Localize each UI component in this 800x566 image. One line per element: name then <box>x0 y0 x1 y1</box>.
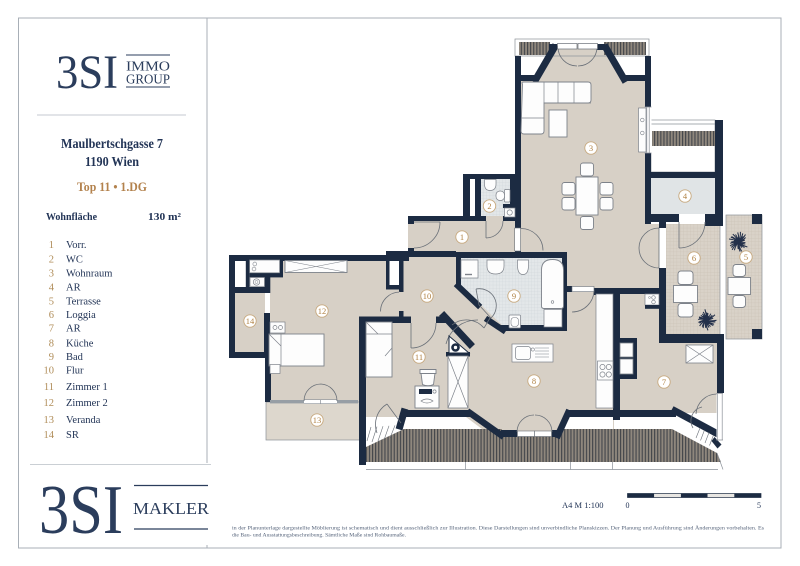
svg-text:3SI: 3SI <box>56 46 118 99</box>
svg-text:Maulbertschgasse 7: Maulbertschgasse 7 <box>61 136 163 151</box>
svg-text:AR: AR <box>66 283 81 294</box>
svg-text:14: 14 <box>44 430 55 441</box>
svg-text:SR: SR <box>66 430 79 441</box>
svg-text:3: 3 <box>49 269 54 280</box>
svg-text:5: 5 <box>757 501 761 510</box>
svg-text:WC: WC <box>66 254 83 265</box>
svg-text:Zimmer 1: Zimmer 1 <box>66 382 108 393</box>
svg-text:GROUP: GROUP <box>126 72 170 87</box>
svg-text:Veranda: Veranda <box>66 415 101 426</box>
svg-text:3SI: 3SI <box>39 472 123 549</box>
svg-text:2: 2 <box>487 201 491 211</box>
svg-text:3: 3 <box>589 143 593 153</box>
svg-text:die Bau- und Ausstattungsbesch: die Bau- und Ausstattungsbeschreibung. S… <box>232 534 406 539</box>
svg-text:9: 9 <box>512 291 516 301</box>
svg-text:AR: AR <box>66 324 81 335</box>
svg-text:0: 0 <box>626 501 630 510</box>
svg-text:5: 5 <box>744 252 748 262</box>
svg-text:1: 1 <box>49 240 54 251</box>
svg-text:7: 7 <box>49 324 54 335</box>
svg-text:14: 14 <box>246 316 255 326</box>
svg-text:7: 7 <box>662 377 666 387</box>
svg-text:Zimmer 2: Zimmer 2 <box>66 398 108 409</box>
svg-text:6: 6 <box>49 310 54 321</box>
svg-text:12: 12 <box>44 398 55 409</box>
svg-text:6: 6 <box>692 253 696 263</box>
svg-text:Flur: Flur <box>66 366 84 377</box>
svg-text:Terrasse: Terrasse <box>66 296 101 307</box>
svg-text:8: 8 <box>532 376 536 386</box>
svg-text:4: 4 <box>49 283 55 294</box>
svg-text:Wohnraum: Wohnraum <box>66 269 112 280</box>
svg-text:Bad: Bad <box>66 352 84 363</box>
svg-text:2: 2 <box>49 254 54 265</box>
svg-text:9: 9 <box>49 352 54 363</box>
svg-text:Loggia: Loggia <box>66 310 96 321</box>
svg-text:1: 1 <box>460 232 464 242</box>
svg-text:in der Planunterlage dargestel: in der Planunterlage dargestellte Möblie… <box>232 526 764 532</box>
svg-text:13: 13 <box>44 415 55 426</box>
svg-text:1190 Wien: 1190 Wien <box>85 154 139 169</box>
svg-text:MAKLER: MAKLER <box>133 499 210 518</box>
svg-text:13: 13 <box>313 415 322 425</box>
svg-text:A4 M 1:100: A4 M 1:100 <box>562 500 604 510</box>
svg-text:11: 11 <box>415 352 423 362</box>
svg-text:Vorr.: Vorr. <box>66 240 87 251</box>
svg-text:Top 11 • 1.DG: Top 11 • 1.DG <box>77 179 147 194</box>
svg-text:10: 10 <box>423 291 432 301</box>
svg-text:5: 5 <box>49 296 54 307</box>
svg-text:10: 10 <box>44 366 55 377</box>
svg-text:11: 11 <box>44 382 54 393</box>
svg-text:8: 8 <box>49 338 54 349</box>
svg-text:Küche: Küche <box>66 338 94 349</box>
svg-text:130 m²: 130 m² <box>148 211 182 223</box>
svg-text:Wohnfläche: Wohnfläche <box>46 211 97 223</box>
svg-text:12: 12 <box>318 306 327 316</box>
